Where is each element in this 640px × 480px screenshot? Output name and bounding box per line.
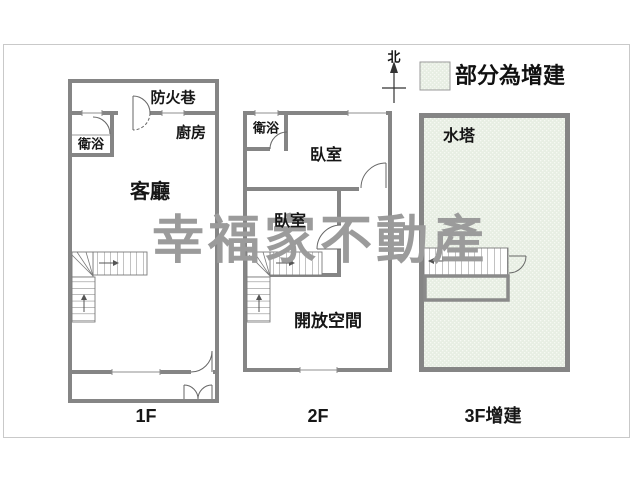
- door-arc: [133, 96, 150, 113]
- door-arc: [93, 117, 110, 134]
- room-label-open-space-2f: 開放空間: [294, 313, 362, 330]
- door-arc: [198, 385, 212, 399]
- room-label-bathroom-1f: 衛浴: [78, 138, 104, 151]
- room-label-kitchen-1f: 廚房: [176, 126, 206, 141]
- room-label-bedroom-top-2f: 臥室: [310, 148, 342, 164]
- door-arc-dashed: [133, 113, 150, 130]
- door-arc: [361, 163, 386, 188]
- door-arc: [184, 385, 198, 399]
- room-label-bedroom-bottom-2f: 臥室: [274, 214, 306, 230]
- north-compass-icon: [382, 61, 406, 103]
- floorplan-image: 幸福家不動產 北 部分為增建 防火巷 衛浴 廚房 客廳 1F 衛浴 臥室 臥室 …: [0, 0, 640, 480]
- door-arc: [191, 351, 212, 372]
- room-label-fire-lane-1f: 防火巷: [150, 91, 195, 106]
- room-label-living-room-1f: 客廳: [130, 182, 170, 202]
- room-label-bathroom-2f: 衛浴: [253, 122, 279, 135]
- compass-north-label: 北: [387, 51, 400, 64]
- legend-label: 部分為增建: [455, 65, 565, 87]
- floor-label-1f: 1F: [135, 407, 156, 425]
- floor-label-3f: 3F增建: [464, 407, 521, 425]
- legend-addition-swatch: [420, 62, 450, 90]
- floor-label-2f: 2F: [307, 407, 328, 425]
- stairs-1f: [72, 252, 147, 322]
- room-label-water-tower-3f: 水塔: [443, 129, 475, 145]
- watermark-text: 幸福家不動產: [152, 215, 488, 267]
